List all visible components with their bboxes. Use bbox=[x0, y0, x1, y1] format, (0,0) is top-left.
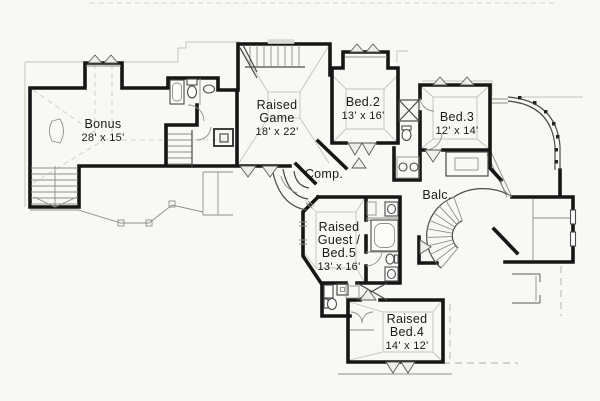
room-label-bed3-dims: 12' x 14' bbox=[436, 125, 479, 137]
sink-symbol bbox=[410, 163, 418, 171]
room-label-guest-line3: Bed.5 bbox=[322, 246, 356, 260]
floor-plan-page: Bonus 28' x 15' Raised Game 18' x 22' Be… bbox=[0, 0, 600, 401]
room-label-bed4-line1: Raised bbox=[387, 312, 428, 326]
window-marker bbox=[88, 55, 102, 63]
fireplace-symbol bbox=[214, 129, 233, 146]
window-marker bbox=[240, 166, 256, 177]
window-seat bbox=[50, 119, 64, 143]
railing-post bbox=[556, 135, 560, 139]
railing-post bbox=[555, 160, 559, 164]
window-marker bbox=[262, 166, 278, 177]
vanity-symbol bbox=[324, 285, 333, 298]
floor-plan-svg: Bonus 28' x 15' Raised Game 18' x 22' Be… bbox=[0, 0, 600, 401]
window-marker bbox=[104, 55, 118, 63]
door-marker bbox=[348, 143, 362, 155]
railing-post bbox=[544, 110, 548, 114]
bonus-stair-treads bbox=[31, 166, 78, 207]
sink-symbol bbox=[388, 270, 396, 279]
railing-curve bbox=[508, 97, 560, 170]
window-marker bbox=[350, 44, 364, 52]
toilet-symbol bbox=[402, 130, 411, 141]
door-marker bbox=[352, 158, 366, 168]
railing-post bbox=[552, 122, 556, 126]
room-label-game-line1: Raised bbox=[257, 98, 298, 112]
door-marker bbox=[362, 143, 376, 155]
spiral-stair-treads bbox=[426, 197, 463, 269]
roof-ridge-dashes bbox=[33, 3, 558, 183]
room-label-bed2-name: Bed.2 bbox=[346, 95, 380, 109]
window-marker bbox=[401, 362, 415, 373]
toilet-tank-symbol bbox=[187, 79, 197, 85]
room-label-bed4-line2: Bed.4 bbox=[390, 325, 424, 339]
toilet-symbol bbox=[188, 86, 197, 98]
window-marker bbox=[386, 362, 400, 373]
room-label-game-line2: Game bbox=[259, 111, 294, 125]
window-symbol bbox=[571, 232, 576, 246]
game-curved-steps bbox=[272, 168, 309, 210]
sink-symbol bbox=[388, 205, 396, 214]
room-label-guest-dims: 13' x 16' bbox=[318, 261, 361, 273]
window-marker bbox=[366, 44, 380, 52]
railing-post bbox=[518, 96, 522, 100]
exterior-and-interior-walls bbox=[30, 44, 573, 362]
closet-shelf-x bbox=[399, 100, 419, 121]
bed3-closet-shelf bbox=[455, 158, 478, 170]
window-symbol bbox=[571, 210, 576, 224]
ceiling-lines bbox=[239, 47, 488, 360]
mid-stair-treads bbox=[168, 134, 192, 164]
lower-floor-outline-dashes bbox=[443, 266, 561, 363]
fireplace-firebox bbox=[220, 134, 228, 142]
toilet-symbol bbox=[328, 299, 337, 310]
sink-symbol bbox=[204, 85, 215, 93]
railing-post bbox=[555, 148, 559, 152]
room-label-guest-line1: Raised bbox=[319, 220, 360, 234]
room-label-guest-line2: Guest / bbox=[318, 233, 361, 247]
room-label-game-dims: 18' x 22' bbox=[256, 126, 299, 138]
sink-symbol bbox=[399, 163, 407, 171]
linen-cabinet bbox=[367, 202, 376, 215]
railing-post bbox=[533, 101, 537, 105]
toilet-tank-symbol bbox=[395, 255, 399, 263]
walls bbox=[30, 42, 576, 363]
shower-drain bbox=[341, 288, 345, 292]
toilet-symbol bbox=[386, 254, 394, 264]
main-stair-treads bbox=[250, 45, 299, 66]
room-label-bed2-dims: 13' x 16' bbox=[342, 110, 385, 122]
sill-and-shelf-lines bbox=[86, 57, 536, 374]
room-label-bed4-dims: 14' x 12' bbox=[386, 340, 429, 352]
room-label-bed3-name: Bed.3 bbox=[440, 110, 474, 124]
bathtub-symbol bbox=[371, 220, 398, 251]
bed3-closet bbox=[446, 152, 488, 176]
room-label-bonus-dims: 28' x 15' bbox=[82, 132, 125, 144]
balcony-railing bbox=[508, 96, 560, 170]
door-marker bbox=[425, 150, 441, 162]
room-label-comp: Comp. bbox=[305, 167, 343, 181]
tray-ceiling-bed2 bbox=[334, 77, 396, 141]
room-label-bonus-name: Bonus bbox=[85, 117, 122, 131]
room-label-balcony: Balc. bbox=[422, 188, 451, 202]
